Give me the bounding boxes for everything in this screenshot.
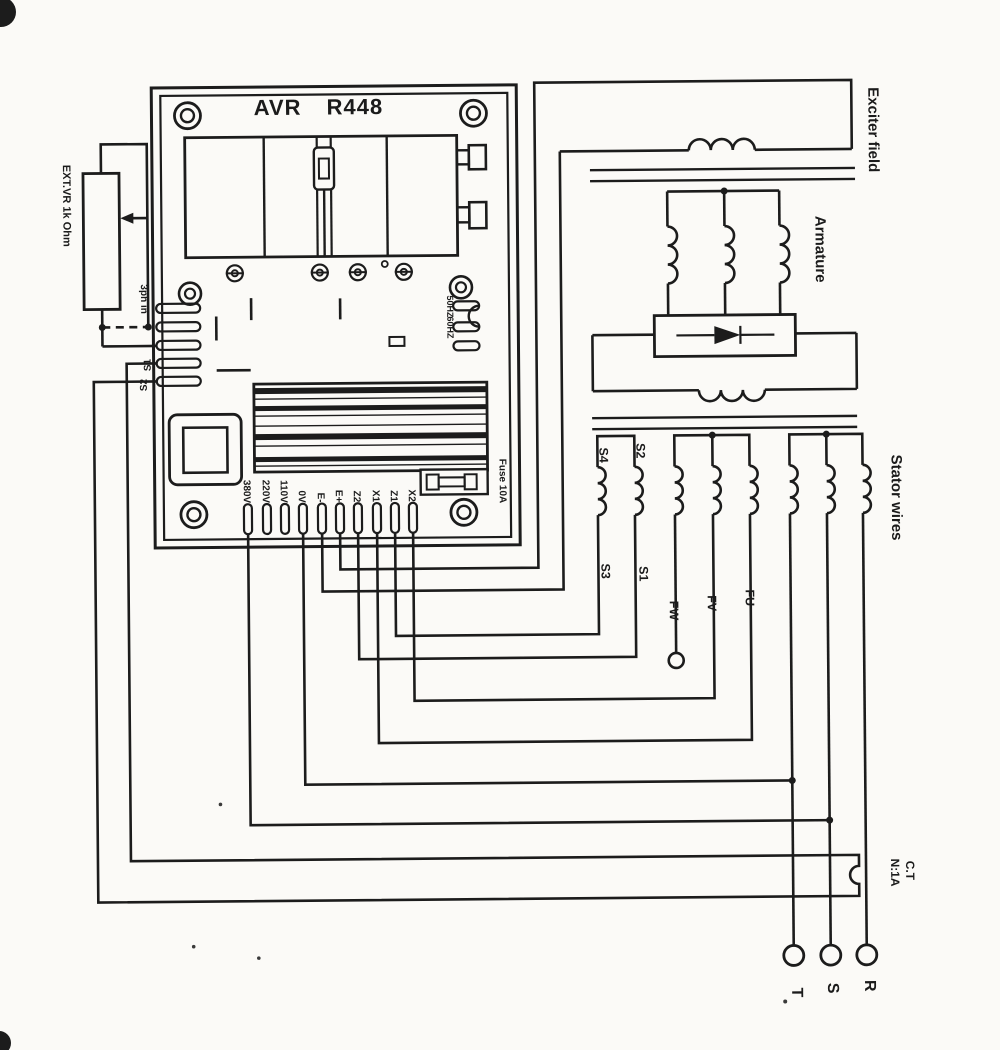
terminal-label-e-minus: E-: [315, 493, 326, 503]
terminal-label-110v: 110V: [278, 480, 289, 503]
winding-label-s2: S2: [633, 443, 647, 458]
bottom-terminal-strip: 380V 220V 110V 0V E- E+ Z2 X1 Z1 X2: [241, 478, 417, 534]
winding-label-fu: FU: [743, 589, 757, 606]
exciter-field-label: Exciter field: [864, 87, 882, 172]
stator-coil-icon: [827, 465, 835, 513]
terminal-110v: [281, 504, 289, 534]
winding-label-fw: FW: [667, 601, 681, 621]
avr-board: AVR R448: [136, 85, 520, 548]
junction-dot: [145, 324, 152, 331]
terminal-label-e-plus: E+: [333, 490, 344, 503]
square-module: [169, 414, 242, 485]
fuse-label: Fuse 10A: [496, 459, 507, 504]
phase-r-wire: [863, 513, 867, 945]
armature-label: Armature: [811, 216, 829, 283]
fuse-holder: [421, 469, 488, 495]
main-field-coil-icon: [699, 390, 765, 402]
terminal-t: [784, 945, 804, 965]
spade-terminal: [457, 145, 487, 228]
scanned-wiring-diagram-page: AVR R448: [0, 0, 1000, 1050]
terminal-e-plus: [336, 503, 344, 533]
exciter-field-circuit: Exciter field: [559, 87, 882, 181]
avr-output-wires: [244, 80, 857, 829]
armature-coil-icon: [779, 225, 789, 282]
terminal-label-z2: Z2: [351, 491, 362, 503]
stator-coil-icon: [713, 466, 721, 514]
armature-circuit: Armature: [590, 186, 857, 429]
fw-lead-wire: [675, 514, 676, 652]
avr-r448-wiring-diagram: AVR R448: [0, 0, 1000, 1050]
freq-slot-spare: [453, 341, 479, 350]
stator-coil-icon: [750, 466, 758, 514]
stator-coil-icon: [635, 467, 643, 515]
junction-dot: [823, 431, 830, 438]
relay-transformer-block: [185, 135, 458, 257]
freq-50hz-label: 50HZ: [445, 295, 455, 318]
winding-label-s4: S4: [596, 447, 610, 462]
phase-label-s: S: [824, 983, 841, 994]
terminal-e-minus: [318, 504, 326, 534]
terminal-label-x1: X1: [370, 490, 381, 503]
ext-vr-label: EXT.VR 1k Ohm: [60, 165, 73, 247]
potentiometer-body: [83, 173, 120, 309]
wire-z1-to-s3: [395, 515, 599, 636]
phase-label-t: T: [788, 987, 805, 997]
terminal-z2: [354, 503, 362, 533]
stator-coil-icon: [598, 467, 606, 515]
scan-specks: [191, 798, 788, 1009]
freq-60hz-label: 60HZ: [445, 316, 455, 339]
terminal-label-380v: 380V: [241, 480, 252, 504]
terminal-label-z1: Z1: [388, 490, 399, 502]
terminal-0v: [299, 504, 307, 534]
terminal-r: [857, 945, 877, 965]
winding-label-fv: FV: [705, 595, 719, 612]
exciter-field-coil-icon: [689, 139, 755, 151]
stator-coil-icon: [790, 465, 798, 513]
wire-e-minus-to-exciter: [319, 151, 564, 591]
board-title: AVR R448: [254, 94, 384, 120]
fw-open-terminal: [669, 653, 684, 668]
scan-corner-artifact-top: [0, 0, 16, 27]
wiper-arrow-icon: [120, 213, 133, 224]
stator-wires-label: Stator wires: [887, 455, 905, 541]
junction-dot: [99, 324, 106, 331]
armature-coil-icon: [667, 226, 677, 283]
ct-label: C.T: [903, 861, 917, 881]
rotor-boundary-line: [592, 416, 857, 418]
winding-label-s1: S1: [636, 566, 650, 581]
current-transformer: C.T N:1A: [888, 858, 917, 887]
sensing-winding-bracket: [674, 435, 749, 467]
terminal-220v: [263, 504, 271, 534]
rotor-boundary-line: [590, 168, 855, 170]
armature-coil-icon: [724, 226, 734, 283]
phase-t-wire: [790, 513, 794, 945]
phase-winding-bracket: [789, 434, 862, 466]
terminal-z1: [391, 503, 399, 533]
rotor-boundary-line: [590, 179, 855, 181]
rotor-boundary-line: [592, 427, 857, 429]
stator-coil-icon: [863, 465, 871, 513]
ext-vr-circuit: EXT.VR 1k Ohm: [60, 144, 158, 347]
phase-label-r: R: [861, 980, 878, 992]
terminal-x2: [409, 503, 417, 533]
terminal-label-220v: 220V: [260, 480, 271, 504]
frequency-selector: 50HZ 60HZ: [445, 295, 479, 350]
ct-ratio-label: N:1A: [888, 858, 902, 886]
terminal-label-x2: X2: [406, 489, 417, 502]
scan-corner-artifact-bottom: [0, 1031, 11, 1050]
phase-s-wire: [827, 513, 831, 945]
adjustment-screw-icon: [226, 261, 413, 282]
terminal-x1: [373, 503, 381, 533]
phase-terminals: T S R: [784, 945, 878, 998]
junction-dot: [709, 432, 716, 439]
heatsink: [254, 382, 488, 472]
winding-label-s3: S3: [598, 563, 612, 578]
terminal-380v: [244, 504, 252, 534]
stator-coil-icon: [675, 466, 683, 514]
terminal-s: [821, 945, 841, 965]
terminal-label-0v: 0V: [296, 490, 307, 503]
board-detail-marks: [216, 297, 405, 371]
trimmer-component: [314, 147, 334, 189]
